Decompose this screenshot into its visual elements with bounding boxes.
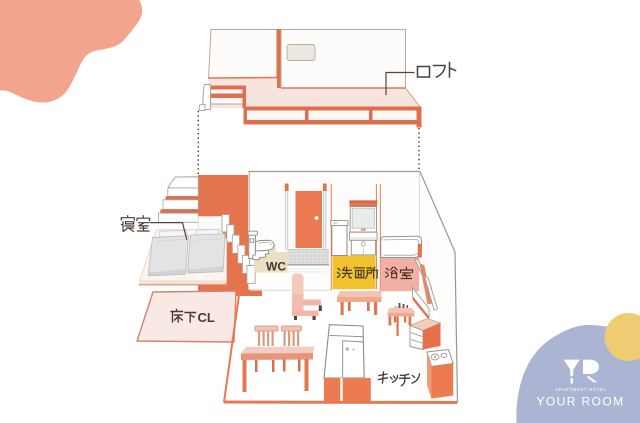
- svg-text:CL: CL: [198, 310, 215, 325]
- svg-text:APARTMENT HOTEL: APARTMENT HOTEL: [555, 387, 607, 392]
- svg-text:WC: WC: [266, 260, 286, 274]
- svg-text:YOUR ROOM: YOUR ROOM: [537, 394, 625, 408]
